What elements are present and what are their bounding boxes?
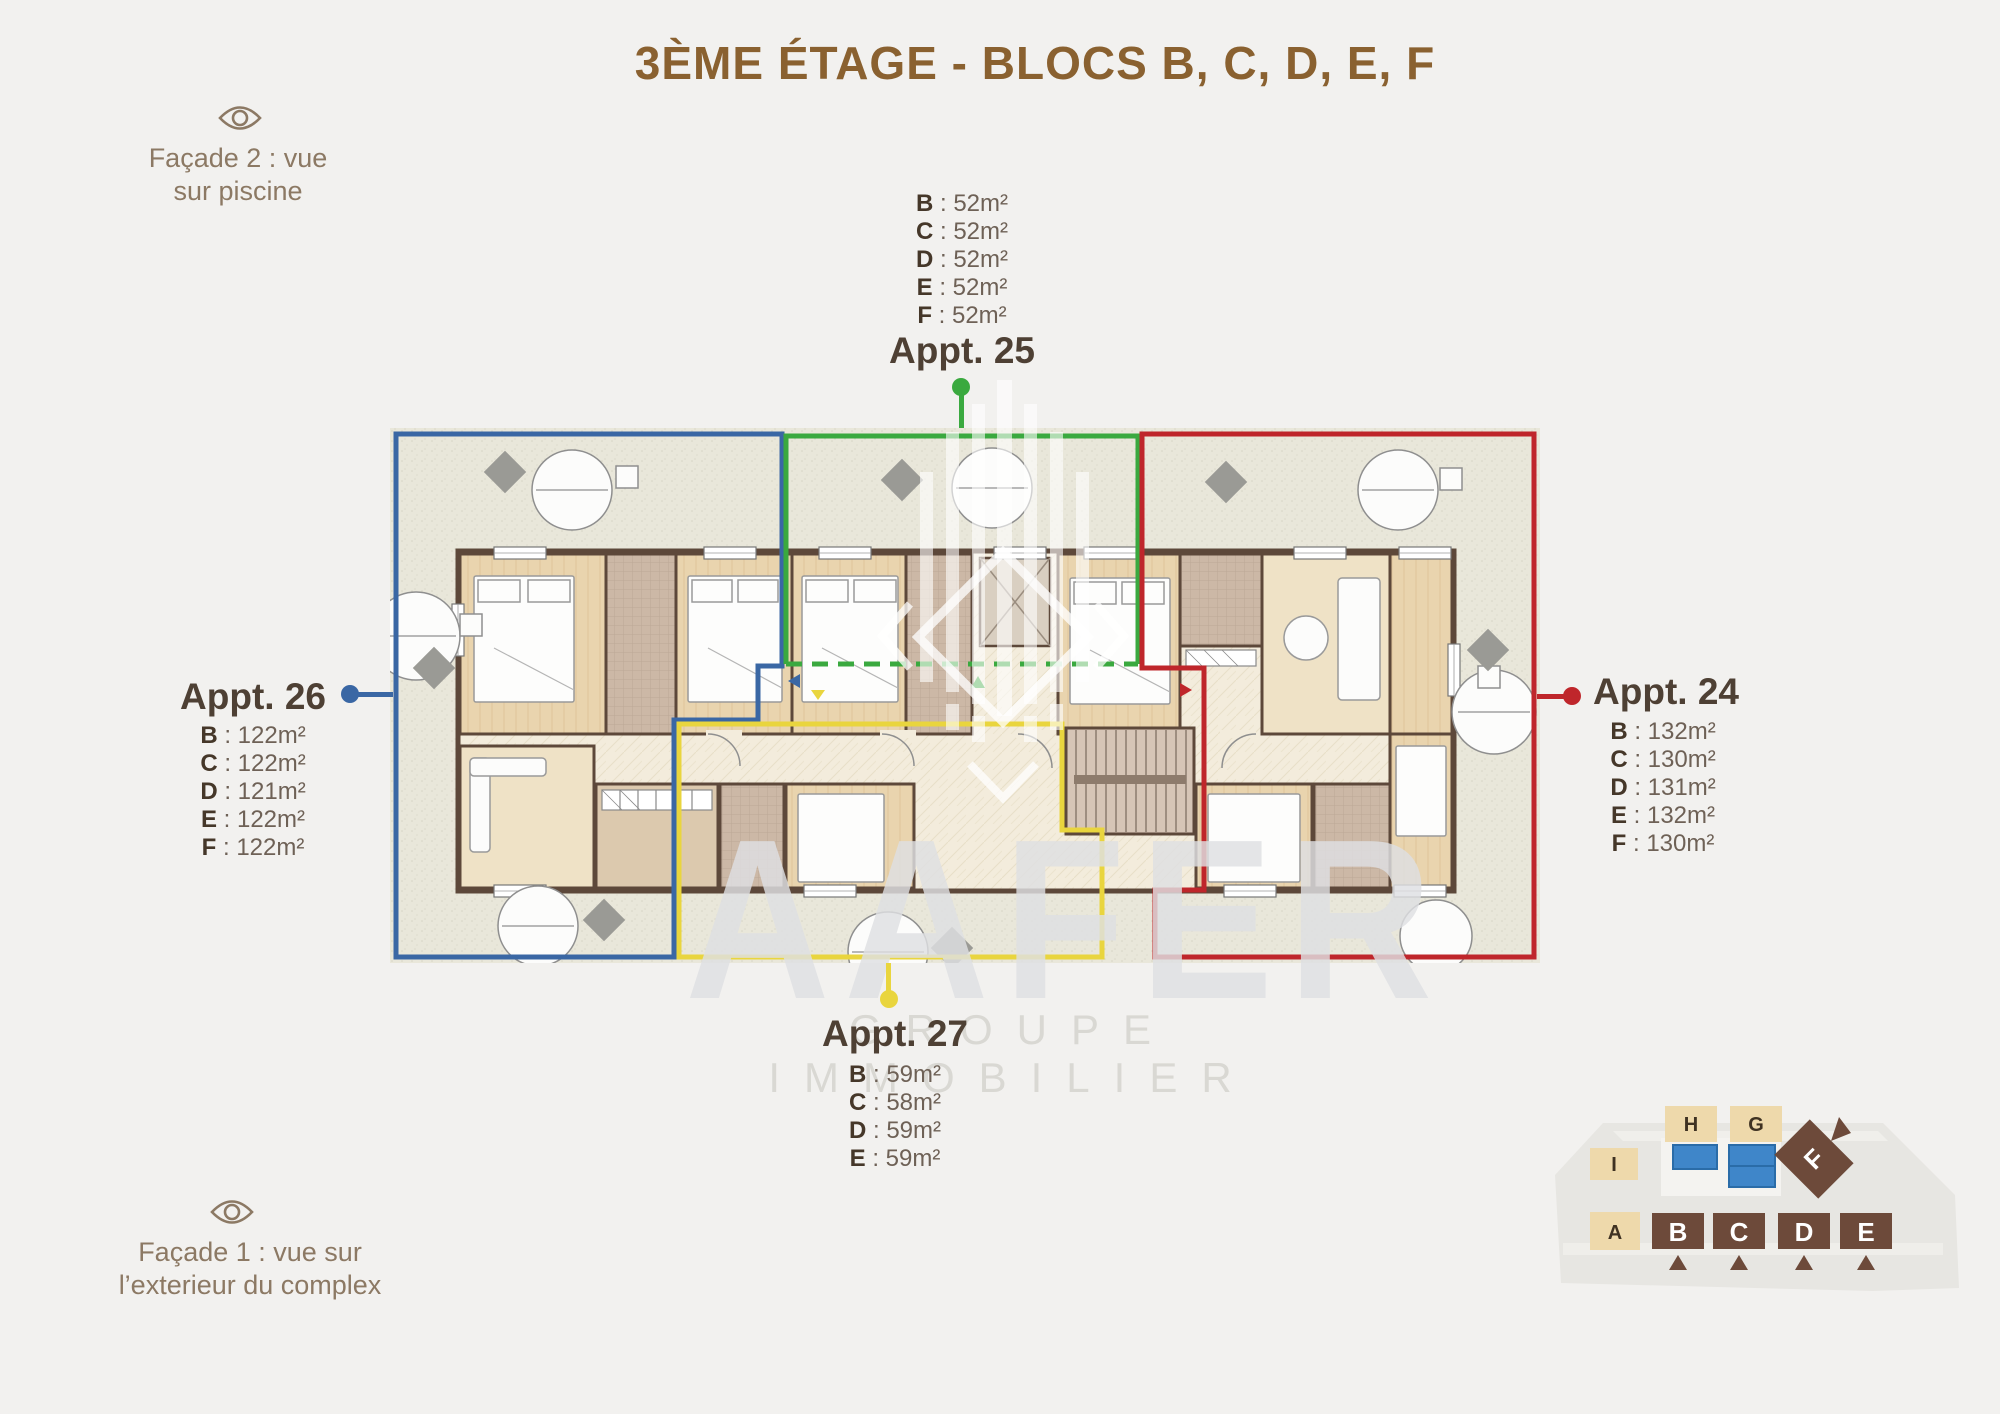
area-line: C : 52m² xyxy=(862,218,1062,246)
area-line: E : 52m² xyxy=(862,274,1062,302)
appt-26-areas: B : 122m² C : 122m² D : 121m² E : 122m² … xyxy=(153,722,353,862)
area-line: E : 132m² xyxy=(1563,802,1763,830)
facade-2-line1: Façade 2 : vue xyxy=(88,142,388,175)
block-i-label: I xyxy=(1611,1154,1617,1176)
facade-2-line2: sur piscine xyxy=(88,175,388,208)
area-line: D : 59m² xyxy=(795,1117,995,1145)
wardrobe xyxy=(1186,650,1256,666)
facade-1-line2: l’exterieur du complex xyxy=(70,1269,430,1302)
facade-1-line1: Façade 1 : vue sur xyxy=(70,1236,430,1269)
appt-25-areas: B : 52m² C : 52m² D : 52m² E : 52m² F : … xyxy=(862,190,1062,330)
block-a-label: A xyxy=(1608,1222,1622,1244)
area-line: B : 122m² xyxy=(153,722,353,750)
area-line: B : 132m² xyxy=(1563,718,1763,746)
area-line: E : 59m² xyxy=(795,1145,995,1173)
appt-27-connector-line xyxy=(886,963,891,993)
bathroom xyxy=(606,554,676,734)
block-h-label: H xyxy=(1684,1114,1698,1136)
block-g-label: G xyxy=(1748,1114,1764,1136)
area-line: E : 122m² xyxy=(153,806,353,834)
watermark-brand-name: AAFER xyxy=(685,806,1345,1034)
area-line: C : 58m² xyxy=(795,1089,995,1117)
facade-1-note: Façade 1 : vue sur l’exterieur du comple… xyxy=(70,1236,430,1302)
bathroom xyxy=(1180,554,1262,646)
area-line: D : 52m² xyxy=(862,246,1062,274)
appt-27-label: Appt. 27 xyxy=(765,1013,1025,1055)
appt-25-connector-line xyxy=(959,394,964,428)
area-line: F : 122m² xyxy=(153,834,353,862)
eye-icon xyxy=(217,102,263,134)
page-title: 3ÈME ÉTAGE - BLOCS B, C, D, E, F xyxy=(535,36,1535,90)
site-map: H G I A B C D E F xyxy=(1543,1083,1963,1345)
pool xyxy=(1673,1145,1717,1169)
block-c-label: C xyxy=(1730,1217,1749,1247)
block-e-label: E xyxy=(1857,1217,1874,1247)
appt-27-areas: B : 59m² C : 58m² D : 59m² E : 59m² xyxy=(795,1061,995,1173)
area-line: F : 130m² xyxy=(1563,830,1763,858)
room xyxy=(1390,554,1452,734)
block-d-label: D xyxy=(1795,1217,1814,1247)
block-b-label: B xyxy=(1669,1217,1688,1247)
appt-24-areas: B : 132m² C : 130m² D : 131m² E : 132m² … xyxy=(1563,718,1763,858)
floor-plan-page: 3ÈME ÉTAGE - BLOCS B, C, D, E, F Façade … xyxy=(0,0,2000,1414)
eye-icon xyxy=(209,1196,255,1228)
area-line: F : 52m² xyxy=(862,302,1062,330)
area-line: D : 121m² xyxy=(153,778,353,806)
appt-26-connector-line xyxy=(355,692,393,697)
area-line: D : 131m² xyxy=(1563,774,1763,802)
area-line: B : 52m² xyxy=(862,190,1062,218)
appt-25-label: Appt. 25 xyxy=(842,330,1082,372)
appt-27-connector-dot xyxy=(880,990,898,1008)
appt-24-connector-line xyxy=(1537,694,1567,699)
area-line: C : 130m² xyxy=(1563,746,1763,774)
area-line: C : 122m² xyxy=(153,750,353,778)
area-line: B : 59m² xyxy=(795,1061,995,1089)
facade-2-note: Façade 2 : vue sur piscine xyxy=(88,142,388,208)
